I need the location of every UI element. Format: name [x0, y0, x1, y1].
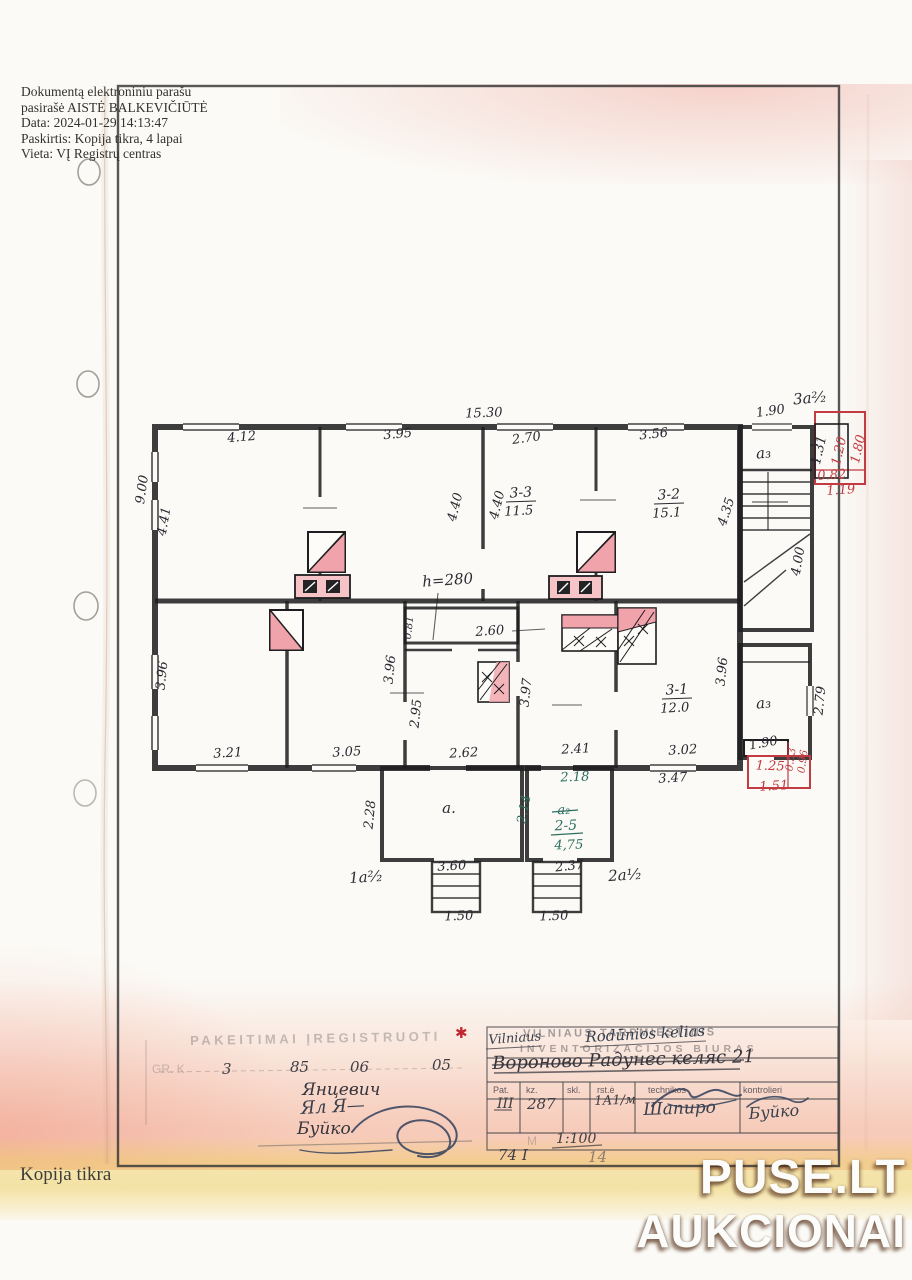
- stove-symbol: [270, 610, 303, 650]
- dimension-labels: 15.30 1.90 3a²⁄₂ 4.12 3.95 2.70 3.56 4.4…: [133, 388, 869, 925]
- document-number: 74 I: [498, 1146, 528, 1164]
- dim-label: 1.90: [748, 734, 779, 754]
- stamp-ledger-value: 05: [432, 1056, 451, 1074]
- controller-surname: Буйко: [748, 1100, 800, 1122]
- table-cell-value: 1А1/м: [594, 1093, 636, 1109]
- dim-label-red: 1.51: [759, 778, 789, 794]
- dim-label: 2.60: [474, 623, 505, 640]
- dim-label: 1.50: [539, 909, 568, 925]
- dim-label: 3.95: [383, 426, 413, 443]
- stamp-ledger-value: 85: [290, 1058, 309, 1076]
- red-asterisk-mark: ✱: [455, 1024, 468, 1042]
- scale-value: 1:100: [556, 1131, 596, 1147]
- dim-label: 1.50: [444, 909, 473, 925]
- table-cell-value: III: [497, 1096, 514, 1112]
- stamp-ledger-value: 3: [222, 1060, 232, 1078]
- watermark-line2: AUKCIONAI: [636, 1204, 906, 1258]
- room-id: 3-3: [509, 484, 532, 501]
- dim-label-green: 2.18: [559, 770, 589, 786]
- dim-label: 3.56: [638, 426, 668, 444]
- dim-label: 3.60: [437, 858, 467, 874]
- dim-label: 2.37: [553, 857, 585, 875]
- table-column-header: skl.: [567, 1085, 581, 1095]
- scale-prefix: М: [527, 1134, 537, 1148]
- e-signature-line: Vieta: VĮ Registrų centras: [21, 146, 208, 162]
- hole-punches: [74, 159, 100, 806]
- table-column-header: Pat.: [493, 1085, 509, 1095]
- table-column-header: technikos: [648, 1085, 686, 1095]
- dim-label: 2.41: [560, 741, 591, 758]
- stamp-ledger-value: 06: [350, 1058, 369, 1076]
- e-signature-line: Paskirtis: Kopija tikra, 4 lapai: [21, 131, 208, 147]
- annex-label: a₃: [755, 443, 772, 462]
- room-area: 11.5: [504, 503, 534, 519]
- stove-symbol: [618, 608, 656, 664]
- document-number-secondary: 14: [588, 1148, 607, 1166]
- table-cell-value: 287: [527, 1095, 556, 1113]
- room-area: 12.0: [660, 700, 690, 716]
- dim-label: 2.70: [510, 429, 542, 448]
- stove-symbol: [295, 532, 350, 598]
- watermark-line1: PUSE.LT: [700, 1150, 906, 1205]
- staircase: [740, 421, 818, 630]
- scanned-document-page: 15.30 1.90 3a²⁄₂ 4.12 3.95 2.70 3.56 4.4…: [0, 0, 912, 1280]
- porch-left: [382, 768, 522, 866]
- copy-certification-note: Kopija tikra: [20, 1164, 111, 1186]
- building-walls: [155, 427, 740, 768]
- stove-symbol: [478, 662, 509, 702]
- stove-symbol: [562, 615, 618, 651]
- handwritten-label: 2a¹⁄₂: [607, 865, 642, 885]
- dim-label: 4.35: [715, 496, 739, 529]
- annex-label: a₃: [755, 693, 772, 712]
- dim-label: 3.05: [332, 744, 362, 760]
- dim-label: 2.79: [811, 685, 829, 716]
- dim-label: 3.96: [154, 660, 172, 690]
- dim-label-red: 1.19: [826, 482, 856, 499]
- technician-surname: Шапиро: [643, 1097, 716, 1120]
- stamp-ledger-prefix: GR. K: [152, 1062, 185, 1076]
- dim-label: 2.62: [448, 745, 479, 762]
- dim-label: 3.96: [714, 656, 732, 686]
- dim-label: 0.81: [402, 615, 416, 640]
- surname-script: Ял Я—: [300, 1095, 365, 1119]
- handwritten-label: 1a²⁄₂: [349, 867, 383, 887]
- dim-label-red: 0.82: [817, 467, 847, 484]
- handwritten-label: h=280: [422, 569, 474, 591]
- room-id: 2-5: [553, 818, 577, 835]
- room-area: 15.1: [652, 505, 682, 521]
- dim-label: 3.02: [668, 742, 698, 758]
- dim-label: 3.47: [658, 770, 688, 787]
- table-column-header: kontrolieri: [743, 1085, 782, 1095]
- dim-label: 3.96: [382, 654, 400, 684]
- annex-label: a.: [442, 799, 456, 817]
- surname-controller-left: Буйко: [297, 1119, 351, 1139]
- dim-label: 2.28: [361, 799, 379, 830]
- e-signature-line: Dokumentą elektroniniu parašu: [21, 84, 208, 100]
- dim-label: 15.30: [465, 405, 503, 421]
- dim-label-red: 1.25: [755, 759, 784, 775]
- dim-label: 2.95: [407, 698, 425, 729]
- room-area: 4,75: [553, 838, 583, 854]
- e-signature-block: Dokumentą elektroniniu parašu pasirašė A…: [21, 84, 208, 162]
- dim-label: 4.12: [226, 429, 257, 447]
- room-id: 3-1: [665, 681, 688, 698]
- room-id: 3-2: [657, 486, 680, 503]
- dim-label-green: 2.14: [514, 794, 534, 826]
- dim-label: 4.00: [788, 546, 808, 578]
- dim-label: 4.40: [445, 491, 467, 524]
- stove-symbol: [549, 532, 615, 599]
- e-signature-line: Data: 2024-01-29 14:13:47: [21, 115, 208, 131]
- dim-label: 3.97: [518, 677, 536, 708]
- dim-label: 3.21: [213, 745, 243, 761]
- e-signature-line: pasirašė AISTĖ BALKEVIČIŪTĖ: [21, 100, 208, 116]
- dim-label-red: 0.96: [795, 749, 810, 774]
- table-column-header: kz.: [526, 1085, 538, 1095]
- handwritten-label: 3a²⁄₂: [792, 388, 826, 409]
- dim-label: 1.90: [755, 402, 786, 421]
